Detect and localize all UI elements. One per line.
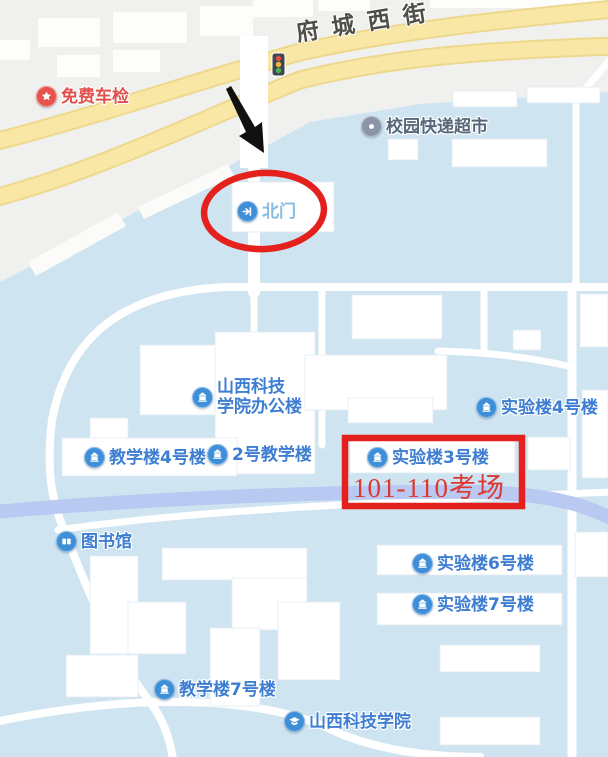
graduation-cap-icon — [284, 711, 305, 732]
exam-room-text: 101-110考场 — [353, 466, 505, 505]
base-map — [0, 0, 608, 757]
poi-lab-building-7[interactable]: 实验楼7号楼 — [412, 594, 534, 615]
map-canvas[interactable]: 府城西街 免费车检 校园快递超市 北门 山西科技 学院办公楼 教学楼4号楼 — [0, 0, 608, 757]
poi-label: 实验楼4号楼 — [501, 398, 598, 418]
poi-teaching-building-4[interactable]: 教学楼4号楼 — [84, 447, 206, 468]
poi-teaching-building-2[interactable]: 2号教学楼 — [207, 444, 312, 465]
poi-shanxi-tech-college[interactable]: 山西科技学院 — [284, 711, 411, 732]
poi-free-car-inspection[interactable]: 免费车检 — [36, 86, 129, 107]
poi-label: 2号教学楼 — [232, 445, 312, 465]
poi-library[interactable]: 图书馆 — [56, 531, 132, 552]
building-icon — [154, 679, 175, 700]
poi-label: 山西科技 学院办公楼 — [217, 377, 302, 417]
building-icon — [412, 553, 433, 574]
gate-enter-icon — [237, 201, 258, 222]
poi-label: 图书馆 — [81, 532, 132, 552]
poi-lab-building-3[interactable]: 实验楼3号楼 — [367, 447, 489, 468]
building-icon — [412, 594, 433, 615]
poi-teaching-building-7[interactable]: 教学楼7号楼 — [154, 679, 276, 700]
poi-campus-express-market[interactable]: 校园快递超市 — [361, 116, 488, 137]
poi-label: 校园快递超市 — [386, 117, 488, 137]
poi-label: 北门 — [262, 202, 296, 222]
star-icon — [36, 86, 57, 107]
poi-office-building[interactable]: 山西科技 学院办公楼 — [192, 377, 302, 417]
building-icon — [207, 444, 228, 465]
building-icon — [476, 397, 497, 418]
poi-label: 实验楼7号楼 — [437, 595, 534, 615]
building-icon — [367, 447, 388, 468]
poi-lab-building-4[interactable]: 实验楼4号楼 — [476, 397, 598, 418]
poi-label: 山西科技学院 — [309, 712, 411, 732]
poi-label: 实验楼6号楼 — [437, 554, 534, 574]
building-icon — [192, 387, 213, 408]
book-icon — [56, 531, 77, 552]
building-icon — [84, 447, 105, 468]
poi-label: 教学楼4号楼 — [109, 448, 206, 468]
poi-dot-icon — [361, 116, 382, 137]
bridge — [240, 36, 268, 168]
poi-north-gate[interactable]: 北门 — [237, 201, 296, 222]
poi-lab-building-6[interactable]: 实验楼6号楼 — [412, 553, 534, 574]
poi-label: 教学楼7号楼 — [179, 680, 276, 700]
poi-label: 实验楼3号楼 — [392, 448, 489, 468]
traffic-light-icon — [272, 53, 285, 76]
poi-label: 免费车检 — [61, 87, 129, 107]
